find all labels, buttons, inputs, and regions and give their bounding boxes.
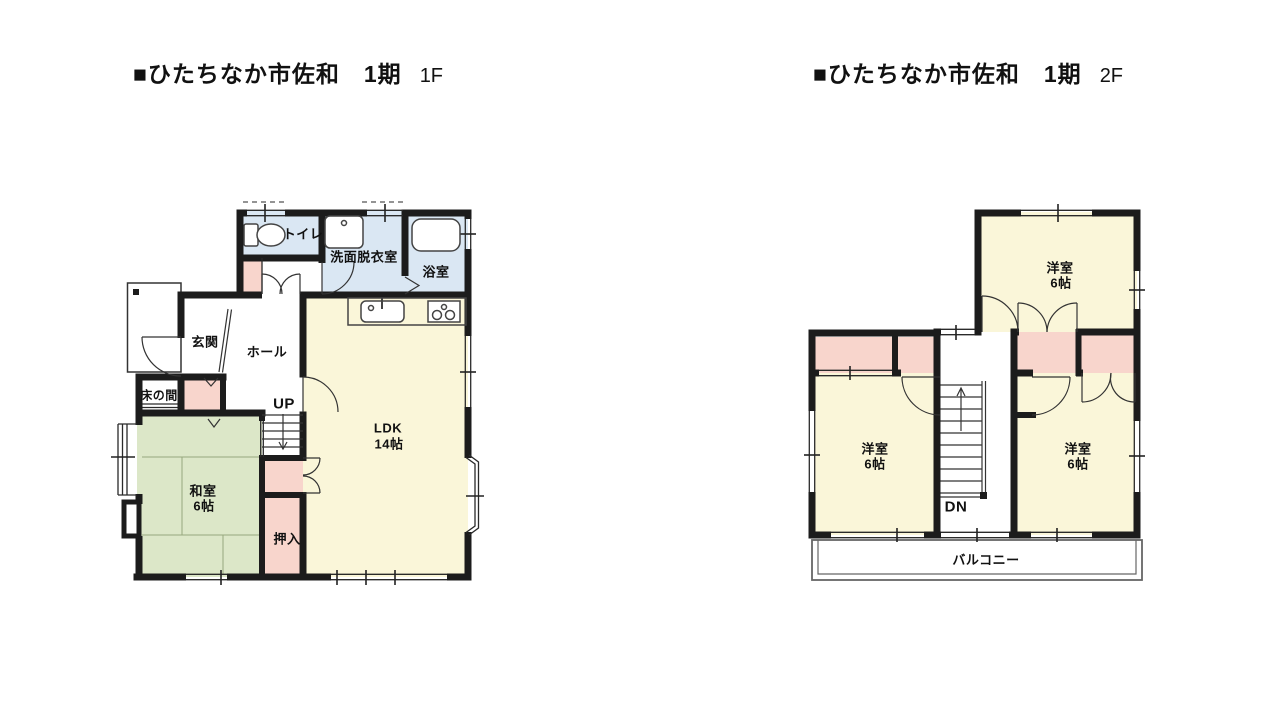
floor2-title: ■ひたちなか市佐和 1期 2F (813, 55, 1123, 89)
floor2-title-floor: 2F (1100, 65, 1123, 88)
floor1-title: ■ひたちなか市佐和 1期 1F (133, 55, 443, 89)
label-washitsu-size: 6帖 (193, 496, 214, 515)
label-washroom: 洗面脱衣室 (330, 247, 398, 266)
toilet-icon (244, 224, 285, 246)
label-room-w-size: 6帖 (864, 454, 885, 473)
floor2-plan (804, 204, 1145, 580)
closet-c (815, 337, 893, 373)
bathtub-icon (412, 219, 460, 251)
floor1-title-text: ■ひたちなか市佐和 1期 (133, 55, 402, 89)
closet-a (1014, 332, 1077, 373)
tokonoma-closet (181, 377, 223, 413)
stair-newel-post (980, 492, 987, 499)
floorplan-canvas: ■ひたちなか市佐和 1期 1F ■ひたちなか市佐和 1期 2F トイレ 洗面脱衣… (0, 0, 1280, 711)
label-stairs-up: UP (273, 396, 295, 413)
closet-d (897, 337, 935, 373)
floor2-title-text: ■ひたちなか市佐和 1期 (813, 55, 1082, 89)
label-balcony: バルコニー (952, 550, 1019, 569)
label-entrance: 玄関 (191, 332, 218, 351)
label-toilet: トイレ (283, 224, 324, 243)
floor2-stairs (941, 381, 988, 499)
label-room-ne-size: 6帖 (1050, 273, 1071, 292)
floor1-title-floor: 1F (420, 65, 443, 88)
tokonoma-board-lines (141, 404, 180, 408)
label-oshiire: 押入 (273, 529, 300, 548)
label-room-se-size: 6帖 (1067, 454, 1088, 473)
understairs-closet (262, 458, 303, 495)
label-stairs-down: DN (945, 499, 968, 516)
floor1-stairs (262, 414, 303, 449)
closet-b (1080, 332, 1135, 373)
porch (128, 283, 182, 372)
label-ldk-size: 14帖 (375, 434, 404, 453)
label-bathroom: 浴室 (422, 262, 449, 281)
floorplan-drawing (0, 0, 1280, 711)
label-hall: ホール (247, 342, 288, 361)
label-tokonoma: 床の間 (140, 387, 178, 404)
washbasin-icon (325, 216, 363, 248)
